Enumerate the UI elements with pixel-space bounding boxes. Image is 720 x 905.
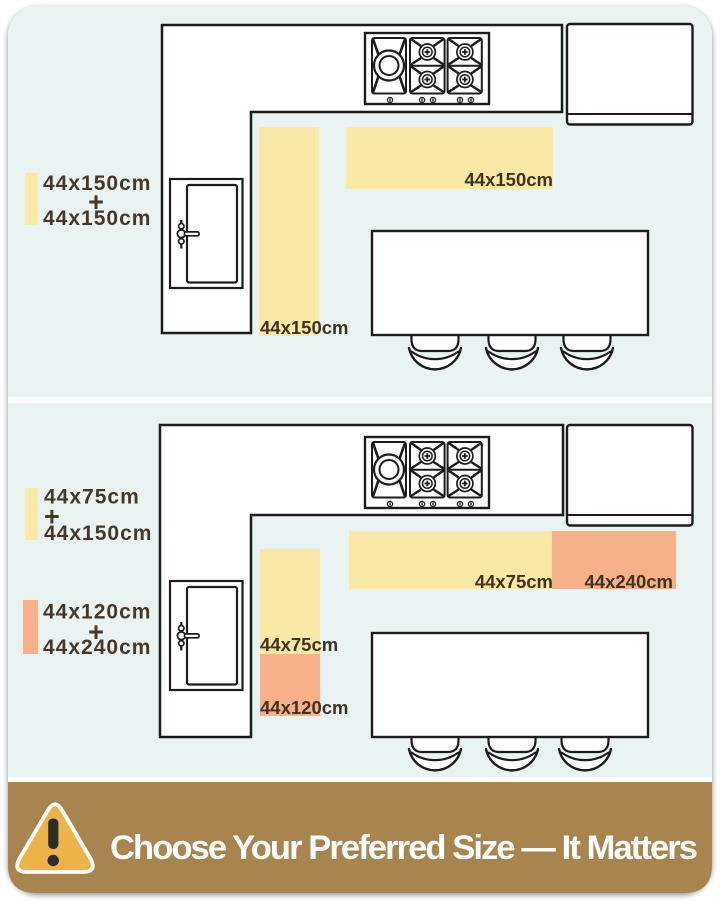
svg-text:Choose Your Preferred Size — I: Choose Your Preferred Size — It Matters	[110, 829, 697, 867]
svg-text:44x75cm: 44x75cm	[475, 571, 553, 592]
svg-text:44x75cm: 44x75cm	[260, 634, 338, 655]
svg-text:44x150cm: 44x150cm	[260, 317, 348, 338]
svg-text:44x240cm: 44x240cm	[585, 571, 673, 592]
svg-text:44x120cm: 44x120cm	[260, 697, 348, 718]
svg-text:44x150cm: 44x150cm	[44, 522, 152, 545]
svg-text:44x240cm: 44x240cm	[43, 636, 151, 659]
svg-text:44x150cm: 44x150cm	[43, 207, 151, 230]
svg-text:44x150cm: 44x150cm	[465, 169, 553, 190]
